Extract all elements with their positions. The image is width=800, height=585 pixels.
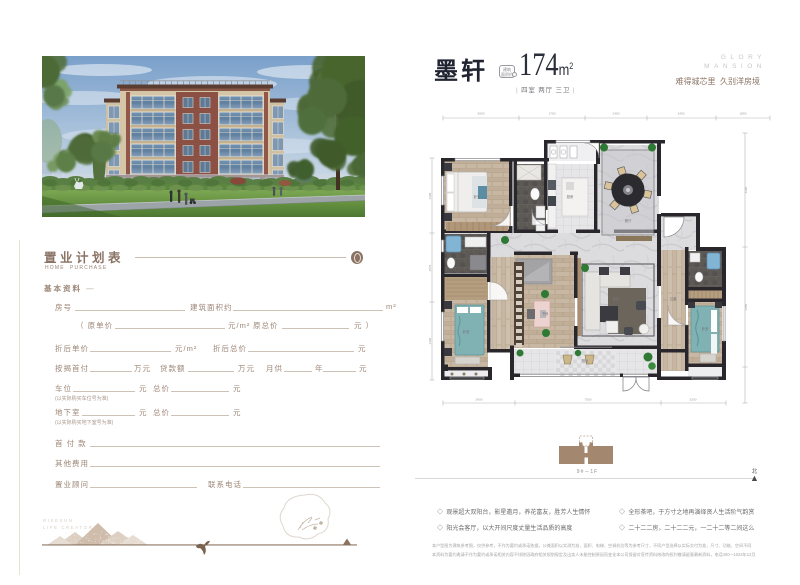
svg-text:4200: 4200 bbox=[744, 186, 748, 193]
svg-text:3650: 3650 bbox=[478, 112, 485, 116]
svg-text:阳台: 阳台 bbox=[582, 358, 589, 363]
svg-text:2450: 2450 bbox=[613, 112, 620, 116]
svg-text:7500: 7500 bbox=[585, 398, 592, 402]
svg-text:3600: 3600 bbox=[476, 398, 483, 402]
svg-text:3300: 3300 bbox=[428, 192, 432, 199]
svg-text:3300: 3300 bbox=[428, 337, 432, 344]
svg-text:卧室: 卧室 bbox=[463, 329, 470, 334]
svg-text:客厅: 客厅 bbox=[613, 296, 620, 301]
svg-text:厨房: 厨房 bbox=[567, 194, 574, 199]
svg-text:RISESUN: RISESUN bbox=[43, 518, 74, 523]
svg-text:3450: 3450 bbox=[678, 112, 685, 116]
svg-text:1850: 1850 bbox=[740, 112, 747, 116]
svg-text:餐厅: 餐厅 bbox=[625, 218, 632, 223]
svg-text:书房: 书房 bbox=[542, 311, 549, 316]
svg-text:卧室: 卧室 bbox=[474, 194, 481, 199]
svg-text:3200: 3200 bbox=[690, 398, 697, 402]
svg-text:3250: 3250 bbox=[744, 303, 748, 310]
svg-text:1750: 1750 bbox=[549, 112, 556, 116]
svg-text:卧室: 卧室 bbox=[702, 326, 709, 331]
svg-text:LIFE CREATOR: LIFE CREATOR bbox=[43, 525, 93, 530]
svg-text:过道: 过道 bbox=[670, 296, 677, 301]
svg-text:2575: 2575 bbox=[428, 264, 432, 271]
